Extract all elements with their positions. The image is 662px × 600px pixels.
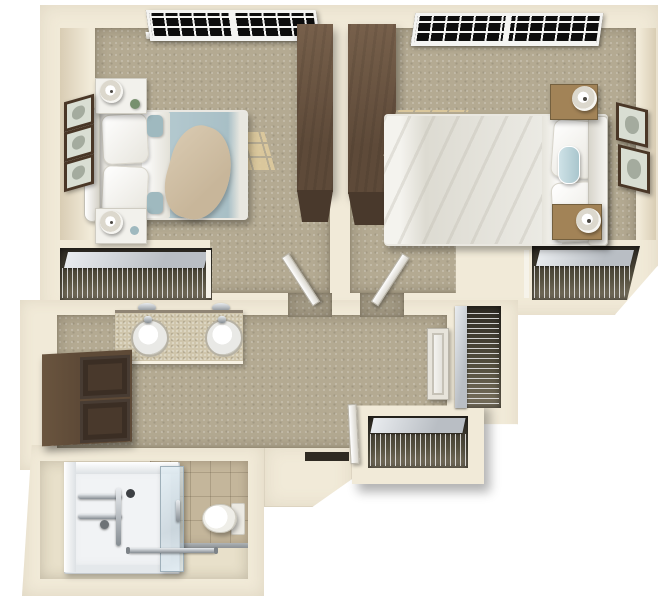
lower-closet-shelf — [370, 418, 465, 433]
lower-closet-wire-shelf — [370, 434, 466, 466]
shower-wall-left — [64, 462, 76, 572]
table-lamp-left-top — [100, 80, 123, 103]
closet-right-shelf — [536, 250, 634, 266]
bed-left-accent-pillow-bottom — [147, 192, 163, 214]
shower-slide-bar — [116, 488, 121, 546]
shower-door-handle — [176, 500, 180, 522]
window-right — [411, 13, 604, 46]
vanity-sink-left — [131, 319, 169, 357]
dish-left-top — [130, 99, 140, 109]
towel-bar-mount-left — [126, 547, 130, 554]
wardrobe-left-front — [297, 190, 333, 222]
wardrobe-left — [297, 24, 333, 192]
table-lamp-right-bottom — [576, 208, 601, 233]
towel-bar-mount-right — [214, 547, 218, 554]
floor-plan — [0, 0, 662, 600]
faucet-right — [218, 316, 226, 323]
toilet-bowl — [202, 504, 237, 533]
bathroom-threshold — [305, 452, 349, 461]
vanity-sink-right — [205, 319, 243, 357]
shower-control-knob — [100, 520, 109, 529]
bed-right-bolster-pillow — [558, 146, 580, 184]
closet-left-shelf — [64, 252, 208, 268]
shower-glass-panel — [160, 466, 184, 572]
table-lamp-left-bottom — [100, 211, 123, 234]
shower-head — [126, 489, 135, 498]
cup-left-bottom — [130, 226, 139, 235]
entry-door — [427, 328, 449, 400]
window-left — [146, 10, 320, 41]
closet-left-wire-shelf — [62, 268, 210, 298]
towel-bar — [128, 548, 216, 553]
storage-cabinet-door-top — [80, 355, 130, 400]
bed-left-pillow-top — [101, 113, 150, 165]
closet-right-jamb — [524, 250, 529, 298]
closet-right-wire-shelf — [534, 266, 634, 298]
wall-frame-right-2 — [618, 144, 650, 194]
table-lamp-right-top — [572, 86, 597, 111]
faucet-left — [144, 316, 152, 323]
storage-cabinet-door-bottom — [80, 399, 130, 444]
closet-left-jamb — [206, 250, 211, 298]
bed-right-duvet — [384, 116, 550, 244]
bed-left-accent-pillow-top — [147, 115, 163, 137]
wall-frame-right-1 — [616, 102, 648, 148]
tall-closet-top-shelf — [455, 306, 467, 408]
